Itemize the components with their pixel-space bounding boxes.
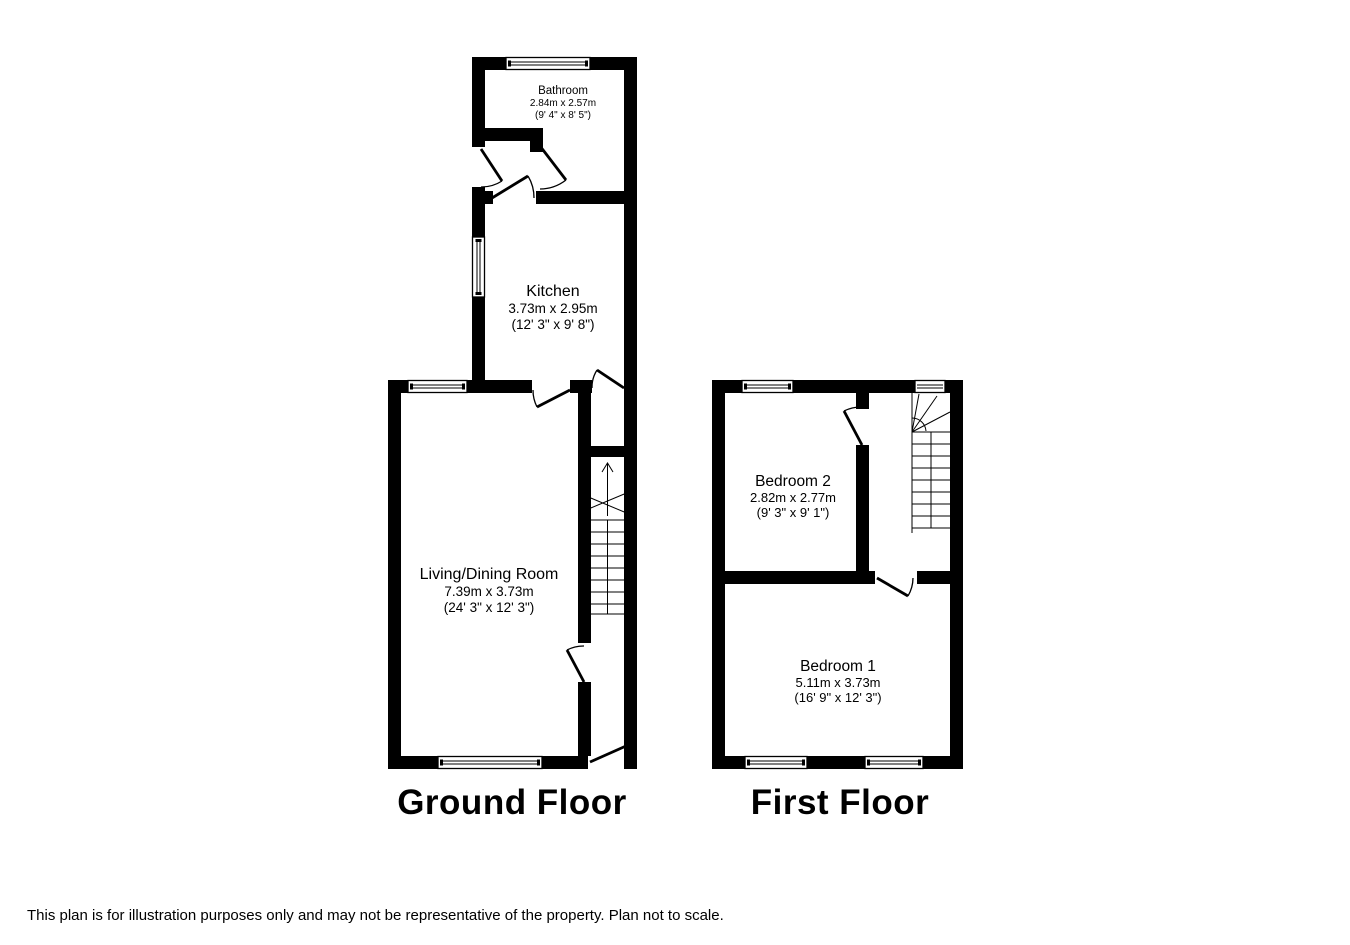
ground-floor-walls xyxy=(388,57,637,769)
room-name: Living/Dining Room xyxy=(420,566,559,584)
room-name: Bathroom xyxy=(530,85,596,98)
door-bathroom xyxy=(540,146,566,189)
room-dimensions-metric: 7.39m x 3.73m xyxy=(420,584,559,600)
door-bedroom-1 xyxy=(877,578,913,596)
ground-floor-plan xyxy=(388,57,637,769)
window-bedroom-1-right xyxy=(865,757,923,769)
room-dimensions-metric: 3.73m x 2.95m xyxy=(508,301,597,317)
staircase-ground-floor xyxy=(586,463,629,614)
room-label-bathroom: Bathroom 2.84m x 2.57m (9' 4" x 8' 5") xyxy=(530,85,596,121)
first-floor-plan xyxy=(712,380,963,769)
door-kitchen-hall xyxy=(592,370,624,388)
room-dimensions-metric: 5.11m x 3.73m xyxy=(794,676,881,691)
window-living-rear xyxy=(408,381,467,393)
door-side-entrance xyxy=(481,149,502,187)
room-name: Bedroom 2 xyxy=(750,473,836,491)
room-dimensions-imperial: (9' 3" x 9' 1") xyxy=(750,506,836,521)
door-bedroom-2 xyxy=(844,407,862,445)
window-kitchen xyxy=(473,237,485,297)
window-bathroom xyxy=(506,58,590,70)
room-dimensions-metric: 2.84m x 2.57m xyxy=(530,98,596,110)
window-living-front xyxy=(438,757,542,769)
door-front-entrance xyxy=(590,746,629,762)
room-dimensions-imperial: (9' 4" x 8' 5") xyxy=(530,110,596,122)
room-label-living-dining: Living/Dining Room 7.39m x 3.73m (24' 3"… xyxy=(420,566,559,615)
window-landing xyxy=(915,381,945,393)
room-dimensions-imperial: (24' 3" x 12' 3") xyxy=(420,600,559,616)
first-floor-title: First Floor xyxy=(751,783,930,823)
door-kitchen-living xyxy=(533,390,570,407)
staircase-first-floor xyxy=(912,393,950,533)
first-floor-walls xyxy=(712,380,963,769)
room-label-bedroom-2: Bedroom 2 2.82m x 2.77m (9' 3" x 9' 1") xyxy=(750,473,836,521)
floorplan-drawing xyxy=(0,0,1350,945)
door-living-hall xyxy=(567,646,584,682)
stairs-direction-arrow xyxy=(586,463,629,516)
room-dimensions-metric: 2.82m x 2.77m xyxy=(750,491,836,506)
door-kitchen xyxy=(492,176,534,198)
disclaimer-text: This plan is for illustration purposes o… xyxy=(27,907,724,924)
room-name: Kitchen xyxy=(508,283,597,301)
room-dimensions-imperial: (16' 9" x 12' 3") xyxy=(794,691,881,706)
window-bedroom-1-left xyxy=(745,757,807,769)
floorplan-page: Bathroom 2.84m x 2.57m (9' 4" x 8' 5") K… xyxy=(0,0,1350,945)
ground-floor-title: Ground Floor xyxy=(397,783,627,823)
room-label-bedroom-1: Bedroom 1 5.11m x 3.73m (16' 9" x 12' 3"… xyxy=(794,658,881,706)
stairs-winder-steps xyxy=(912,394,950,432)
window-bedroom-2 xyxy=(742,381,793,393)
room-name: Bedroom 1 xyxy=(794,658,881,676)
room-dimensions-imperial: (12' 3" x 9' 8") xyxy=(508,317,597,333)
room-label-kitchen: Kitchen 3.73m x 2.95m (12' 3" x 9' 8") xyxy=(508,283,597,332)
